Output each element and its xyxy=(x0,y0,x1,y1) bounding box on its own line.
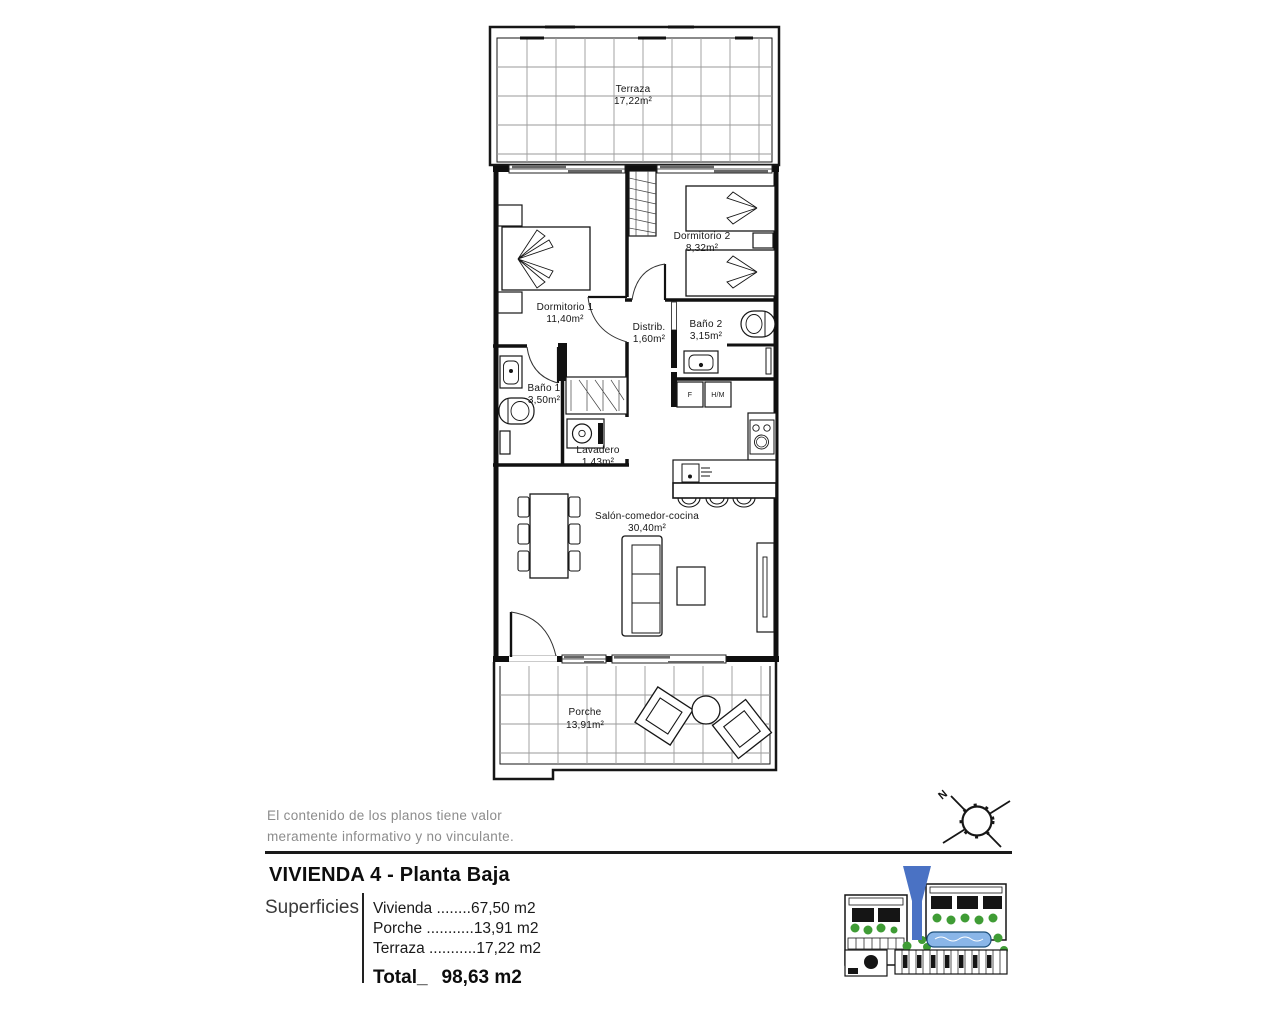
room-label-salon: Salón-comedor-cocina xyxy=(595,511,699,522)
superficies-row: Terraza ...........17,22 m2 xyxy=(373,939,541,959)
floorplan-page: Terraza 17,22m² xyxy=(0,0,1280,1024)
wardrobe xyxy=(629,171,656,236)
towel-rail xyxy=(500,431,510,454)
shower-screen xyxy=(766,348,771,374)
oven-label: H/M xyxy=(711,392,724,399)
terrace-window-2 xyxy=(657,165,772,173)
nightstand xyxy=(753,233,773,248)
room-label-distribuidor: Distrib. xyxy=(633,322,666,333)
room-area-bano2: 3,15m² xyxy=(690,331,723,342)
room-label-bano1: Baño 1 xyxy=(528,383,561,394)
wall-corner-block xyxy=(558,343,567,381)
nightstand xyxy=(498,205,522,226)
superficies-row: Vivienda ........67,50 m2 xyxy=(373,899,541,919)
dormitorio1-door xyxy=(588,297,627,342)
salon-window xyxy=(562,655,606,663)
superficies-block: Superficies Vivienda ........67,50 m2 Po… xyxy=(265,893,541,989)
page-title: VIVIENDA 4 - Planta Baja xyxy=(269,864,510,887)
room-area-dormitorio2: 8,32m² xyxy=(686,243,719,254)
terraza-room: Terraza 17,22m² xyxy=(490,27,779,165)
terrace-window-1 xyxy=(509,165,625,173)
compass-north-label: N xyxy=(936,788,950,802)
porche-armchair xyxy=(635,687,693,745)
porche-armchair xyxy=(713,700,772,759)
superficies-total: Total_98,63 m2 xyxy=(373,967,541,989)
kitchen-zone xyxy=(673,382,776,507)
bar-stools xyxy=(678,498,755,507)
superficies-row: Porche ...........13,91 m2 xyxy=(373,919,541,939)
porche-sliding-door xyxy=(612,655,726,664)
kitchen-sink xyxy=(682,464,699,482)
room-label-lavadero: Lavadero xyxy=(576,445,620,456)
compass-icon: N xyxy=(936,788,1010,847)
site-plan xyxy=(845,866,1008,976)
disclaimer-line2: meramente informativo y no vinculante. xyxy=(267,827,514,848)
porche-room: Porche 13,91m² xyxy=(494,662,776,779)
dining-table xyxy=(530,494,568,578)
disclaimer: El contenido de los planos tiene valor m… xyxy=(267,806,514,848)
porche-round-table xyxy=(692,696,720,724)
room-area-salon: 30,40m² xyxy=(628,523,667,534)
room-area-terraza: 17,22m² xyxy=(614,96,653,107)
room-area-dormitorio1: 11,40m² xyxy=(546,314,584,325)
bano1-door xyxy=(527,347,558,383)
coffee-table xyxy=(677,567,705,605)
room-area-porche: 13,91m² xyxy=(566,720,605,731)
superficies-divider xyxy=(362,893,364,983)
room-label-porche: Porche xyxy=(569,707,602,718)
room-label-dormitorio1: Dormitorio 1 xyxy=(537,302,594,313)
dormitorio1-room xyxy=(498,205,590,313)
single-bed xyxy=(686,250,775,296)
room-area-bano1: 3,50m² xyxy=(528,395,561,406)
room-label-bano2: Baño 2 xyxy=(690,319,723,330)
room-label-terraza: Terraza xyxy=(616,84,651,95)
dormitorio2-door xyxy=(632,264,665,300)
disclaimer-line1: El contenido de los planos tiene valor xyxy=(267,806,514,827)
double-bed xyxy=(502,227,590,290)
room-label-dormitorio2: Dormitorio 2 xyxy=(674,231,731,242)
fridge-label: F xyxy=(688,392,692,399)
floor-plan: Terraza 17,22m² xyxy=(0,0,1280,1024)
entrance-door xyxy=(509,612,557,662)
lavadero-room xyxy=(566,377,627,448)
room-area-lavadero: 1,43m² xyxy=(582,457,615,468)
breakfast-bar xyxy=(673,483,776,498)
separator-line xyxy=(265,851,1012,854)
superficies-label: Superficies xyxy=(265,893,362,919)
bano2-door xyxy=(671,302,677,407)
room-area-distribuidor: 1,60m² xyxy=(633,334,666,345)
nightstand xyxy=(498,292,522,313)
single-bed xyxy=(686,186,775,231)
